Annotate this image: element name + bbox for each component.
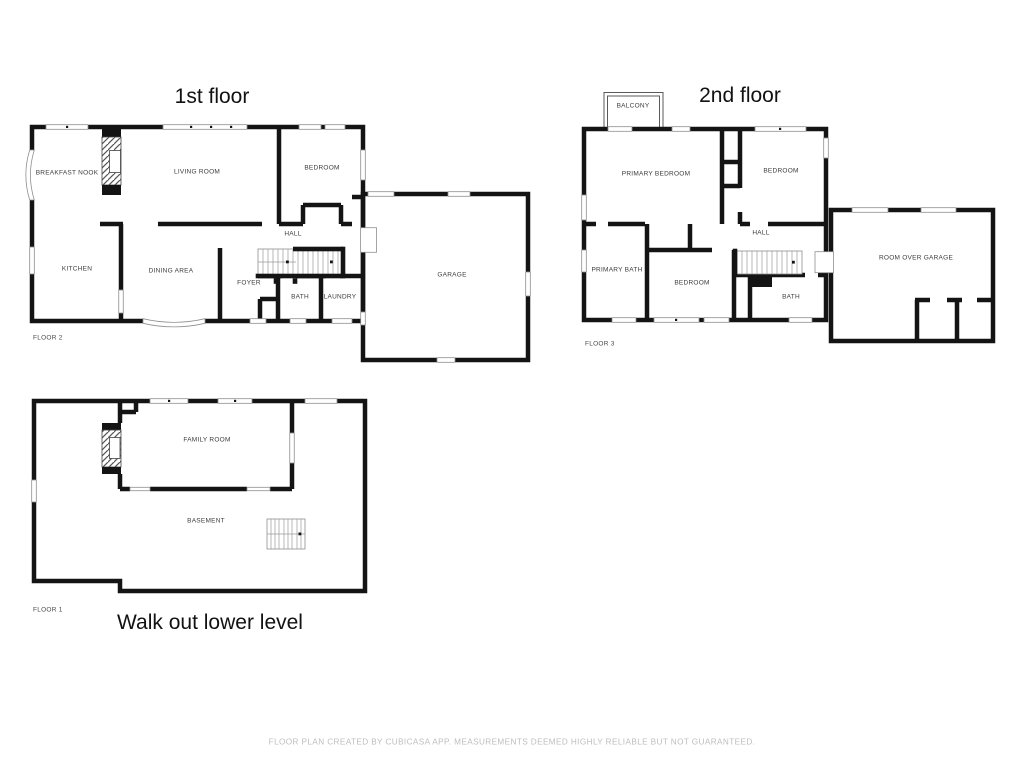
- second-floor-interior-walls: [584, 129, 826, 320]
- floor-tag-lower: FLOOR 1: [33, 607, 63, 614]
- floor-tag-second: FLOOR 3: [585, 341, 615, 348]
- balcony-outline: [604, 93, 663, 130]
- fireplace: [102, 127, 121, 195]
- room-label-breakfast-nook: BREAKFAST NOOK: [36, 170, 99, 177]
- kitchen-door-opening: [119, 290, 124, 313]
- first-floor-interior-walls: [100, 127, 363, 321]
- room-label-bedroom-first: BEDROOM: [304, 165, 339, 172]
- room-over-garage-door-opening: [815, 252, 834, 273]
- floor-tag-first: FLOOR 2: [33, 335, 63, 342]
- room-label-basement: BASEMENT: [187, 518, 225, 525]
- room-label-bedroom-bottom: BEDROOM: [674, 280, 709, 287]
- garage-door-opening: [361, 228, 377, 253]
- basement-fireplace: [102, 423, 121, 474]
- room-label-primary-bath: PRIMARY BATH: [591, 267, 642, 274]
- room-label-kitchen: KITCHEN: [62, 266, 92, 273]
- first-floor-plan: [26, 125, 530, 363]
- room-label-family-room: FAMILY ROOM: [183, 437, 230, 444]
- basement-stairs: [267, 519, 305, 549]
- room-label-balcony: BALCONY: [617, 103, 650, 110]
- floor-plan-canvas: [0, 0, 1024, 768]
- room-label-hall-first: HALL: [284, 231, 301, 238]
- basement-plan: [32, 399, 365, 591]
- room-label-foyer: FOYER: [237, 280, 261, 287]
- room-label-bedroom-right: BEDROOM: [763, 168, 798, 175]
- second-floor-plan: [582, 93, 993, 342]
- room-label-garage: GARAGE: [437, 272, 466, 279]
- room-label-bath-first: BATH: [291, 294, 309, 301]
- bow-window: [143, 319, 205, 327]
- room-label-bath-second: BATH: [782, 294, 800, 301]
- room-label-dining-area: DINING AREA: [149, 268, 194, 275]
- first-floor-title: 1st floor: [175, 85, 250, 109]
- room-label-living-room: LIVING ROOM: [174, 169, 220, 176]
- second-floor-title: 2nd floor: [699, 84, 781, 108]
- first-floor-stairs: [256, 247, 346, 284]
- room-label-laundry: LAUNDRY: [324, 294, 357, 301]
- family-room-door-opening: [290, 433, 295, 463]
- floor-plan-page: 1st floor 2nd floor Walk out lower level…: [0, 0, 1024, 768]
- lower-level-title: Walk out lower level: [117, 611, 303, 635]
- family-room-walls: [120, 401, 292, 489]
- room-over-garage-plan: [831, 208, 993, 341]
- room-label-primary-bedroom: PRIMARY BEDROOM: [622, 171, 691, 178]
- balcony-door-opening: [608, 127, 632, 132]
- room-label-hall-second: HALL: [752, 230, 769, 237]
- room-label-room-over-garage: ROOM OVER GARAGE: [879, 255, 953, 262]
- second-floor-stairs: [733, 249, 802, 276]
- footer-disclaimer: FLOOR PLAN CREATED BY CUBICASA APP. MEAS…: [269, 738, 756, 747]
- bay-window: [26, 150, 35, 200]
